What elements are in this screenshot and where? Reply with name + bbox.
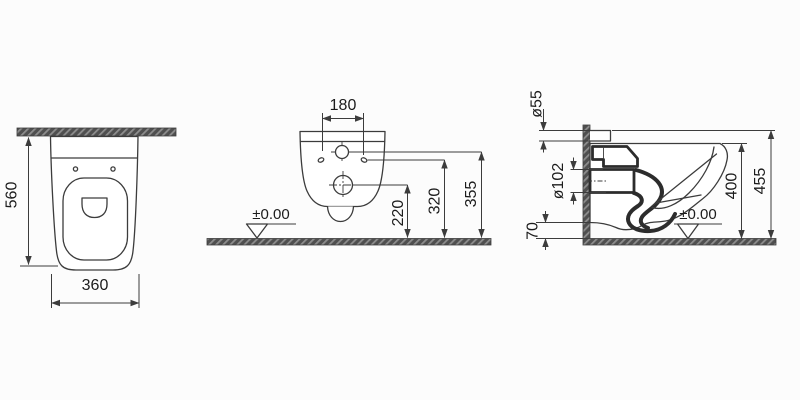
dim-label-rim-height: 400: [724, 173, 741, 200]
side-view: ø55 ø102 70 400 455 ±0.00: [525, 90, 776, 250]
dim-label-depth: 560: [4, 182, 21, 209]
floor-section-side: [583, 239, 776, 246]
datum-label-rear: ±0.00: [252, 206, 289, 223]
outlet-pipe-section: [590, 170, 634, 193]
dim-label-inlet-height: 355: [463, 181, 480, 208]
datum-triangle-rear: [247, 224, 268, 238]
datum-label-side: ±0.00: [679, 206, 716, 223]
dim-label-width: 360: [82, 277, 109, 294]
dim-label-hole-spacing: 180: [330, 97, 357, 114]
datum-triangle-side: [678, 224, 699, 239]
dim-label-holes-height: 320: [427, 188, 444, 215]
water-inlet-hole: [336, 146, 349, 159]
inlet-spud-box: [590, 131, 611, 142]
top-view: 560 360: [4, 128, 176, 308]
technical-drawing-canvas: 560 360 180 220 320: [0, 0, 800, 400]
toilet-body-outline-rear: [300, 132, 385, 207]
dim-label-inlet-diameter: ø55: [529, 90, 546, 118]
dim-label-outlet-diameter: ø102: [550, 163, 567, 200]
rear-view: 180 220 320 355 ±0.00: [207, 97, 491, 245]
toilet-dimension-drawing: 560 360 180 220 320: [0, 0, 800, 400]
floor-section-rear: [207, 239, 491, 246]
wall-section-plan: [17, 128, 176, 136]
flush-jet-cup: [82, 198, 107, 218]
seat-opening-outline: [63, 178, 128, 260]
dim-label-overall-height: 455: [752, 168, 769, 195]
dim-label-outlet-height: 220: [390, 200, 407, 227]
dim-label-floor-clearance: 70: [525, 222, 542, 240]
bottom-shroud-rear: [328, 207, 354, 222]
